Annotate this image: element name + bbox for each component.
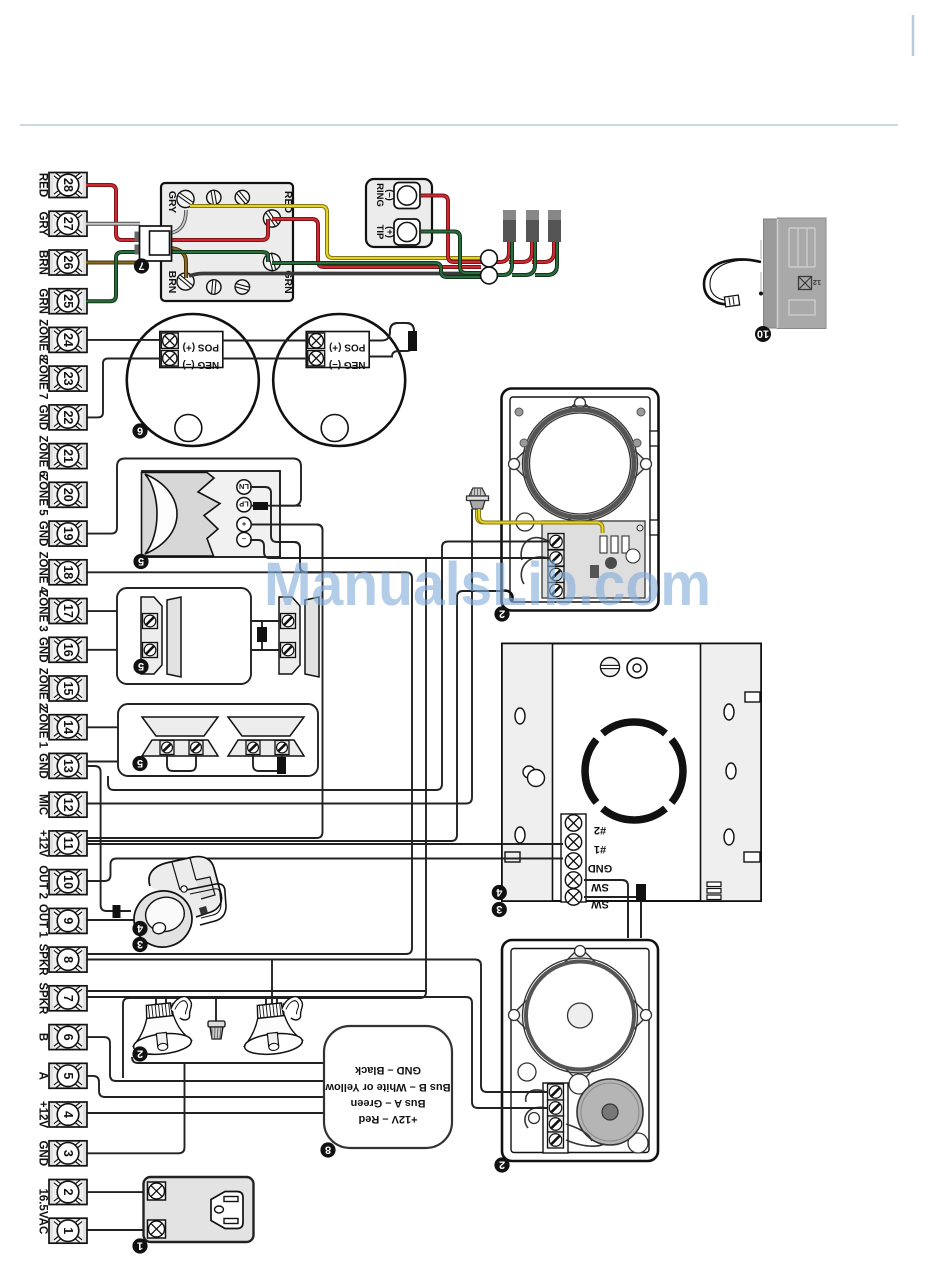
- svg-text:1: 1: [61, 1227, 75, 1234]
- svg-text:GRN: GRN: [37, 288, 49, 314]
- svg-text:10: 10: [757, 327, 769, 339]
- svg-text:20: 20: [61, 488, 75, 502]
- svg-text:LP: LP: [239, 500, 249, 509]
- svg-text:1: 1: [137, 1239, 143, 1251]
- svg-text:Bus A – Green: Bus A – Green: [350, 1097, 425, 1109]
- svg-text:8: 8: [61, 956, 75, 963]
- svg-text:3: 3: [137, 938, 143, 950]
- svg-text:8: 8: [325, 1143, 331, 1155]
- svg-text:RED: RED: [282, 191, 294, 214]
- svg-text:LN: LN: [239, 482, 249, 491]
- svg-text:12: 12: [61, 798, 75, 812]
- svg-text:6: 6: [61, 1034, 75, 1041]
- svg-text:22: 22: [61, 410, 75, 424]
- svg-text:#2: #2: [594, 824, 606, 836]
- svg-text:ManualsLib.com: ManualsLib.com: [264, 550, 711, 618]
- svg-text:TIP: TIP: [374, 225, 385, 240]
- svg-text:+: +: [241, 520, 246, 529]
- svg-text:GND: GND: [588, 862, 613, 874]
- svg-text:4: 4: [136, 922, 143, 934]
- svg-text:13: 13: [61, 759, 75, 773]
- svg-text:17: 17: [61, 604, 75, 618]
- svg-text:B: B: [37, 1033, 49, 1041]
- svg-text:GND: GND: [37, 753, 49, 779]
- svg-text:BRN: BRN: [166, 271, 178, 294]
- svg-text:GND: GND: [37, 637, 49, 663]
- svg-text:3: 3: [496, 903, 502, 915]
- svg-text:RED: RED: [37, 173, 49, 197]
- svg-text:23: 23: [61, 372, 75, 386]
- svg-text:ZONE 6: ZONE 6: [37, 435, 49, 477]
- svg-text:3: 3: [61, 1150, 75, 1157]
- svg-text:GND: GND: [37, 1140, 49, 1166]
- svg-text:Bus B – White or Yellow: Bus B – White or Yellow: [325, 1081, 451, 1093]
- svg-text:12: 12: [813, 278, 821, 287]
- svg-text:ZONE 5: ZONE 5: [37, 474, 49, 516]
- svg-text:POS (+): POS (+): [329, 342, 365, 353]
- svg-text:19: 19: [61, 527, 75, 541]
- svg-text:A: A: [37, 1072, 49, 1080]
- svg-text:ZONE 4: ZONE 4: [37, 552, 49, 594]
- svg-text:14: 14: [61, 720, 75, 734]
- svg-text:5: 5: [138, 555, 144, 567]
- svg-text:NEG (–): NEG (–): [329, 359, 366, 370]
- svg-text:18: 18: [61, 565, 75, 579]
- svg-text:GRY: GRY: [37, 211, 49, 236]
- svg-text:7: 7: [61, 995, 75, 1002]
- svg-text:BRN: BRN: [37, 250, 49, 275]
- svg-text:ZONE 3: ZONE 3: [37, 590, 49, 632]
- svg-text:10: 10: [61, 875, 75, 889]
- svg-text:4: 4: [495, 886, 502, 898]
- svg-text:25: 25: [61, 294, 75, 308]
- svg-text:+12V: +12V: [37, 1101, 49, 1129]
- svg-text:27: 27: [61, 217, 75, 231]
- svg-text:9: 9: [61, 917, 75, 924]
- svg-text:15: 15: [61, 682, 75, 696]
- svg-text:–: –: [242, 535, 246, 544]
- svg-text:+12V – Red: +12V – Red: [358, 1113, 417, 1125]
- svg-text:GND – Black: GND – Black: [354, 1064, 421, 1076]
- svg-text:ZONE 2: ZONE 2: [37, 668, 49, 710]
- svg-text:24: 24: [61, 333, 75, 347]
- svg-text:GND: GND: [37, 405, 49, 431]
- svg-text:5: 5: [137, 757, 143, 769]
- svg-text:GRY: GRY: [166, 191, 178, 213]
- svg-text:OUT 2: OUT 2: [37, 865, 49, 899]
- svg-text:+12V: +12V: [37, 830, 49, 858]
- svg-text:SW: SW: [591, 881, 609, 893]
- svg-text:26: 26: [61, 256, 75, 270]
- svg-text:GND: GND: [37, 521, 49, 547]
- svg-text:2: 2: [137, 1047, 143, 1059]
- svg-text:11: 11: [61, 837, 75, 850]
- svg-text:ZONE 1: ZONE 1: [37, 706, 49, 748]
- svg-text:28: 28: [61, 178, 75, 192]
- svg-text:#1: #1: [594, 843, 606, 855]
- svg-text:POS (+): POS (+): [183, 342, 219, 353]
- svg-text:SPKR: SPKR: [37, 944, 49, 977]
- svg-text:16.5VAC: 16.5VAC: [37, 1188, 49, 1234]
- svg-text:NEG (–): NEG (–): [182, 359, 219, 370]
- svg-text:SPKR: SPKR: [37, 982, 49, 1015]
- svg-text:2: 2: [61, 1189, 75, 1196]
- svg-text:6: 6: [137, 424, 143, 436]
- svg-text:ZONE 8: ZONE 8: [37, 319, 49, 361]
- svg-text:4: 4: [61, 1111, 75, 1118]
- svg-text:RING: RING: [374, 183, 385, 207]
- svg-text:7: 7: [138, 259, 144, 271]
- svg-text:MIC: MIC: [37, 794, 49, 815]
- svg-text:21: 21: [61, 449, 75, 463]
- svg-text:2: 2: [499, 1158, 505, 1170]
- svg-text:SW: SW: [591, 898, 609, 910]
- svg-text:5: 5: [61, 1072, 75, 1079]
- svg-text:5: 5: [138, 660, 144, 672]
- svg-text:16: 16: [61, 643, 75, 657]
- svg-text:OUT 1: OUT 1: [37, 904, 49, 938]
- svg-text:ZONE 7: ZONE 7: [37, 358, 49, 400]
